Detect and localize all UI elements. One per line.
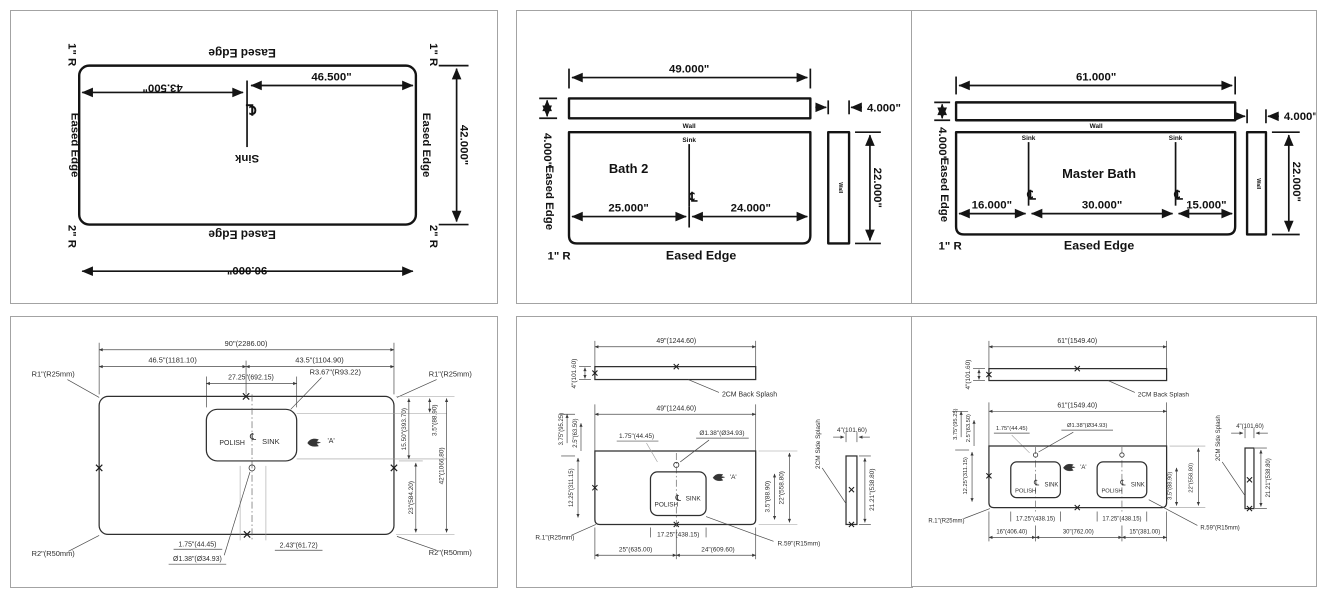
dim-side-splash-width	[1234, 109, 1279, 123]
hole-diameter-value: Ø1.38"(Ø34.93)	[699, 430, 744, 437]
dim-side-splash-length-value: 21.21"(538.80)	[869, 469, 876, 511]
dim-sink-right-value: 46.500"	[311, 72, 351, 84]
bath2-cad-drawing: 49"(1244.60) 4"(101.60) 2CM Back Splash …	[517, 317, 912, 587]
leader-sink-radius	[706, 517, 774, 542]
dim-sink-top-offset-value: 3.5"(88.90)	[432, 404, 439, 436]
island-plan-drawing: Eased Edge 1" R 1" R 2" R 2" R 46.500" 4…	[11, 11, 497, 303]
corner-radius-top-right: 1" R	[427, 43, 439, 66]
dim-back-offset-2-value: 2.5"(63.50)	[573, 419, 579, 448]
sink-centerline-symbol: ℄	[246, 100, 257, 116]
back-splash-label: 2CM Back Splash	[722, 391, 777, 398]
sink-centerline-symbol: ℄	[675, 493, 682, 503]
back-splash	[956, 102, 1235, 120]
sink2-label: Sink	[1169, 135, 1183, 142]
back-splash	[989, 369, 1167, 381]
side-splash-mid-mark	[1247, 477, 1252, 482]
panel-bath2-plan: 49.000" 4.000" Eased Edge Wall Sink ℄ Ba…	[516, 10, 913, 304]
detail-a-label: 'A'	[730, 474, 737, 481]
eased-edge-left-label: Eased Edge	[543, 165, 555, 230]
panel-master-plan: 61.000" 4.000" Eased Edge Wall Sink Sink…	[911, 10, 1317, 304]
side-splash-wall-label: Wall	[837, 182, 843, 193]
corner-radius-label: 1" R	[547, 250, 570, 262]
eased-edge-top-label: Eased Edge	[208, 46, 276, 60]
polish-label: POLISH	[655, 502, 679, 509]
edge-midpoint-marks	[96, 393, 397, 537]
back-splash-label: 2CM Back Splash	[1138, 391, 1190, 398]
dim-right-half-value: 43.5"(1104.90)	[295, 356, 344, 365]
leader-sink-radius	[291, 378, 322, 410]
corner-radius-bottom-right: 2" R	[427, 225, 439, 248]
dim-sink-width-value: 27.25"(692.15)	[228, 375, 274, 382]
dim-sink-spacing-value: 30.000"	[1082, 200, 1122, 212]
sink1-label: Sink	[1022, 135, 1036, 142]
leader-back-splash	[1108, 381, 1135, 393]
sink-label: Sink	[234, 152, 259, 164]
sink-centerline-symbol: ℄	[249, 431, 256, 442]
sink-caps-label: SINK	[262, 437, 279, 446]
dim-sink1-from-left-value: 16"(406.40)	[996, 529, 1027, 535]
countertop-outline	[956, 132, 1235, 234]
bath2-plan-drawing: 49.000" 4.000" Eased Edge Wall Sink ℄ Ba…	[517, 11, 912, 303]
dim-depth-value: 22.000"	[1290, 162, 1302, 202]
hole-diameter-leader	[1039, 432, 1074, 452]
dim-splash-height-value: 4"(101.60)	[571, 359, 578, 389]
detail-a-label: 'A'	[1080, 465, 1086, 471]
leader-hole-diameter	[224, 472, 250, 555]
panel-master-cad: 61"(1549.40) 4"(101.60) 2CM Back Splash …	[911, 316, 1317, 587]
dim-sink1-left-value: 16.000"	[972, 200, 1012, 212]
side-splash-label: 2CM Side Splash	[1216, 415, 1222, 461]
leader-side-splash	[822, 468, 846, 504]
corner-radius-top-left: 1" R	[65, 43, 77, 66]
hole-offset-value: 1.75"(44.45)	[178, 541, 216, 548]
dim-length-value: 49.000"	[669, 64, 709, 76]
dim-depth-value: 22.000"	[871, 168, 883, 208]
countertop-outline	[99, 396, 394, 534]
dim-length-value: 61"(1549.40)	[1057, 402, 1097, 409]
dim-back-offset-value: 3.75"(95.25)	[953, 408, 959, 440]
dim-sink-left-value: 43.500"	[142, 81, 182, 93]
hole-diameter-value: Ø1.38"(Ø34.93)	[1067, 423, 1107, 429]
panel-island-plan: Eased Edge 1" R 1" R 2" R 2" R 46.500" 4…	[10, 10, 498, 304]
dim-sink-to-bottom-value: 3.5"(88.90)	[1168, 472, 1174, 500]
dim-splash-height	[539, 98, 557, 118]
dim-splash-height-value: 4.000"	[936, 127, 948, 161]
leader-corner-bl	[68, 535, 99, 551]
dim-depth-value: 22"(558.80)	[778, 471, 785, 504]
dim-sink2-width-value: 17.25"(438.15)	[1102, 516, 1141, 522]
panel-island-cad: 90"(2286.00) 46.5"(1181.10) 43.5"(1104.9…	[10, 316, 498, 588]
sink2-centerline-symbol: ℄	[1173, 188, 1183, 203]
room-label: Bath 2	[609, 161, 648, 176]
dim-side-splash-width-value: 4"(101.60)	[837, 427, 867, 434]
corner-radius-top-right-label: R1"(R25mm)	[429, 370, 473, 379]
dim-splash-height-value: 4"(101.60)	[965, 360, 972, 390]
sink-caps-label: SINK	[686, 496, 702, 503]
dim-sink-span-value: 15.50"(393.70)	[401, 408, 408, 450]
eased-edge-left-label: Eased Edge	[938, 157, 950, 222]
dim-splash-height	[579, 367, 591, 380]
room-label: Master Bath	[1062, 166, 1136, 181]
dim-sink-right-value: 24.000"	[731, 203, 771, 215]
hole-offset-leader	[1012, 435, 1030, 453]
side-splash	[1245, 448, 1254, 509]
dim-sink-center-depth-value: 12.25"(311.15)	[569, 468, 575, 507]
hole-offset-2-value: 2.43"(61.72)	[280, 542, 318, 549]
dim-side-splash-length-value: 21.21"(538.80)	[1266, 458, 1272, 497]
dim-depth-value: 42"(1066.80)	[439, 447, 446, 484]
sink-centerline-symbol: ℄	[688, 190, 698, 205]
sink2-polish-label: POLISH	[1101, 489, 1122, 495]
sink1-centerline-symbol: ℄	[1026, 188, 1036, 203]
dim-splash-height	[973, 369, 985, 381]
corner-radius-label: R.1"(R25mm)	[928, 518, 964, 524]
sink1-caps-label: SINK	[1045, 483, 1059, 489]
dim-side-splash-width	[815, 100, 862, 114]
dim-back-offset-value: 3.75"(95.25)	[559, 413, 565, 445]
dim-splash-height-value: 4.000"	[541, 133, 553, 167]
sink1-polish-label: POLISH	[1015, 489, 1036, 495]
dim-back-offset-2-value: 2.5"(63.50)	[966, 414, 972, 442]
dim-sink2-right-value: 15.000"	[1186, 200, 1226, 212]
corner-radius-bottom-left: 2" R	[65, 225, 77, 248]
dim-sink-from-left-value: 25"(635.00)	[619, 546, 652, 553]
splash-extension-lines	[989, 341, 1167, 369]
dim-sink-width-value: 17.25"(438.15)	[657, 531, 699, 538]
corner-radius-label: 1" R	[939, 240, 962, 252]
dim-left-half-value: 46.5"(1181.10)	[148, 356, 197, 365]
countertop-outline	[595, 451, 756, 524]
island-cad-drawing: 90"(2286.00) 46.5"(1181.10) 43.5"(1104.9…	[11, 317, 497, 587]
hole-offset-value: 1.75"(44.45)	[996, 426, 1028, 432]
polish-label: POLISH	[219, 440, 244, 447]
eased-edge-right-label: Eased Edge	[420, 113, 432, 178]
dim-depth-value: 22"(558.80)	[1188, 463, 1194, 493]
dim-sink-from-right-value: 24"(609.60)	[701, 546, 734, 553]
dim-splash-height	[934, 102, 950, 120]
dim-sink-to-bottom-value: 3.5"(88.90)	[765, 481, 772, 513]
detail-hand-icon	[308, 439, 321, 446]
sink-corner-radius-label: R.59"(R15mm)	[1200, 525, 1239, 531]
hole-offset-value: 1.75"(44.45)	[619, 433, 654, 440]
sink1-centerline-symbol: ℄	[1033, 479, 1040, 488]
dim-sink1-width-value: 17.25"(438.15)	[1016, 516, 1055, 522]
hole-diameter-value: Ø1.38"(Ø34.93)	[173, 556, 222, 563]
detail-a-label: 'A'	[327, 438, 334, 445]
dim-side-splash-width-value: 4"(101.60)	[1236, 424, 1264, 430]
leader-corner	[571, 524, 596, 535]
dim-splash-length-value: 49"(1244.60)	[656, 338, 696, 345]
leader-side-splash	[1222, 462, 1245, 496]
eased-edge-left-label: Eased Edge	[68, 113, 80, 178]
side-splash-mid-mark	[849, 487, 854, 492]
dim-sink-spacing-value: 30"(762.00)	[1063, 529, 1094, 535]
countertop-outline	[989, 446, 1167, 508]
master-cad-drawing: 61"(1549.40) 4"(101.60) 2CM Back Splash …	[912, 317, 1316, 586]
panel-bath2-cad: 49"(1244.60) 4"(101.60) 2CM Back Splash …	[516, 316, 913, 588]
dim-length-value: 90"(2286.00)	[225, 339, 268, 348]
sink2-caps-label: SINK	[1131, 483, 1145, 489]
sink-label: Sink	[682, 137, 696, 144]
side-splash-label: 2CM Side Splash	[815, 419, 822, 469]
dim-depth-value: 42.000"	[458, 125, 470, 165]
corner-radius-bottom-left-label: R2"(R50mm)	[32, 549, 76, 558]
hole-offset-leader	[647, 443, 658, 462]
detail-hand-icon	[1063, 464, 1075, 471]
drawing-sheet: Eased Edge 1" R 1" R 2" R 2" R 46.500" 4…	[0, 0, 1325, 597]
wall-label: Wall	[683, 123, 696, 130]
dim-sink-center-depth-value: 12.25"(311.15)	[963, 457, 969, 495]
dim-sink-to-bottom-value: 23"(584.20)	[408, 481, 415, 514]
back-splash	[595, 367, 756, 380]
corner-radius-label: R.1"(R25mm)	[535, 534, 574, 541]
dim-length-value: 49"(1244.60)	[656, 405, 696, 412]
corner-radius-top-left-label: R1"(R25mm)	[32, 370, 76, 379]
dim-side-splash-width-value: 4.000"	[1284, 111, 1316, 123]
leader-corner-tl	[67, 380, 99, 398]
leader-corner	[964, 509, 990, 519]
dim-sink-left-value: 25.000"	[608, 203, 648, 215]
leader-back-splash	[688, 380, 719, 393]
sink2-centerline-symbol: ℄	[1119, 479, 1126, 488]
dim-length-value: 90.000"	[227, 264, 267, 276]
eased-edge-bottom-label: Eased Edge	[666, 248, 736, 262]
dim-sink2-from-right-value: 15"(381.00)	[1129, 529, 1160, 535]
wall-label: Wall	[1090, 123, 1103, 130]
detail-hand-icon	[713, 474, 725, 481]
dim-side-splash-width-value: 4.000"	[867, 102, 901, 114]
eased-edge-bottom-label: Eased Edge	[1064, 238, 1134, 252]
sink-corner-radius-label: R3.67"(R93.22)	[310, 368, 362, 377]
side-splash-wall-label: Wall	[1255, 178, 1261, 189]
leader-sink-radius	[1149, 500, 1198, 526]
leader-corner-tr	[397, 380, 437, 398]
dim-length-value: 61.000"	[1076, 72, 1116, 84]
master-plan-drawing: 61.000" 4.000" Eased Edge Wall Sink Sink…	[912, 11, 1316, 303]
dim-splash-length-value: 61"(1549.40)	[1057, 338, 1097, 345]
leader-corner-br	[397, 536, 437, 550]
eased-edge-bottom-label: Eased Edge	[208, 227, 276, 241]
back-splash	[569, 98, 810, 118]
sink-corner-radius-label: R.59"(R15mm)	[778, 540, 821, 547]
